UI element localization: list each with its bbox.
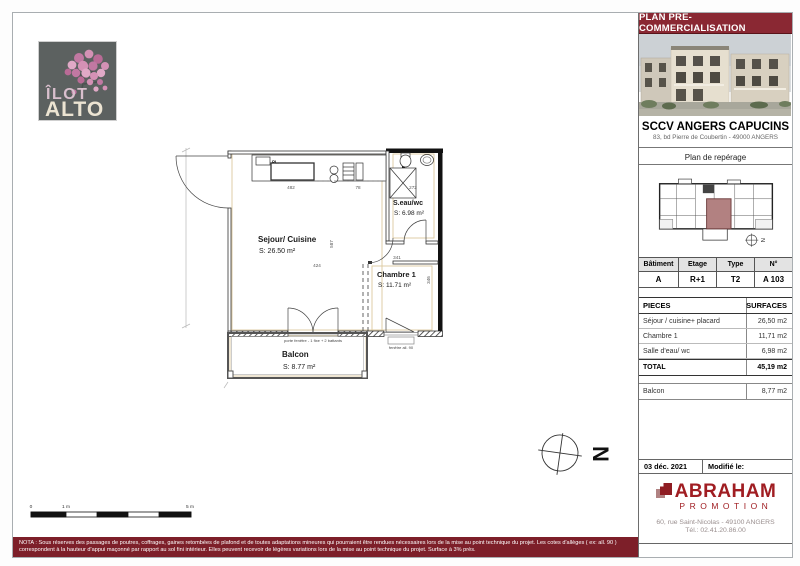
porte-fenetre-label: porte fenêtre - 1 fixe + 2 battants [284,338,342,343]
row-value: 6,98 m2 [746,344,792,358]
logo-text-bottom: ALTO [45,98,104,121]
col-pieces: PIECES [639,301,746,310]
dim-sejour-h: 587 [329,240,334,248]
floor-plan: Sejour/ Cuisine S: 26.50 m² S.eau/wc S: … [166,136,646,406]
reperage-title: Plan de repérage [639,150,792,165]
balcon-label: Balcon [282,350,309,359]
table-gap [639,376,792,383]
unit-header-type: Type [717,258,755,272]
balcon-value: 8,77 m2 [746,384,792,399]
balcon-row: Balcon 8,77 m2 [639,383,792,400]
table-row: Chambre 1 11,71 m2 [639,329,792,344]
unit-header-etage: Etage [679,258,717,272]
dim-kitchen: 482 [287,185,295,190]
dim-k2: 78 [355,185,361,190]
promoter-tagline: PROMOTION [655,501,773,511]
col-surfaces: SURFACES [746,298,792,313]
title-block-sidebar: PLAN PRE-COMMERCIALISATION [638,13,792,557]
modified-label: Modifié le: [703,462,744,471]
total-label: TOTAL [639,364,746,371]
building-right [731,54,789,104]
chambre-area: S: 11.71 m² [378,282,412,289]
table-row: Séjour / cuisine+ placard 26,50 m2 [639,314,792,329]
placard-label: PL. [272,160,279,165]
dim-sejour-w: 424 [313,263,321,268]
document-date: 03 déc. 2021 [639,460,703,473]
row-value: 26,50 m2 [746,314,792,328]
nota-line2: correspondent à la hauteur d'appui maçon… [19,547,640,554]
sdb-area: S: 6.98 m² [394,210,425,217]
scale-five: 5 m [186,504,194,510]
ilot-alto-logo: ÎLOT ALTO [38,41,117,121]
dimension-guides [182,148,228,388]
date-row: 03 déc. 2021 Modifié le: [639,459,792,474]
north-letter: N [588,446,613,462]
total-value: 45,19 m2 [746,360,792,375]
row-label: Chambre 1 [639,333,746,340]
dim-chambre-h: 346 [426,276,431,284]
building-render-image [639,34,791,116]
unit-value-etage: R+1 [679,272,717,287]
unit-value-type: T2 [717,272,755,287]
surfaces-header-row: PIECES SURFACES [639,297,792,314]
sejour-label: Sejour/ Cuisine [258,235,317,244]
scale-zero: 0 [30,504,33,510]
document-title-banner: PLAN PRE-COMMERCIALISATION [639,13,792,34]
nota-banner: NOTA : Sous réserves des passages de pou… [13,537,646,557]
unit-header-numero: N° [755,258,792,272]
bathroom-fixtures [390,153,434,198]
plan-sheet: ÎLOT ALTO [12,12,793,558]
promoter-block: ABRAHAM PROMOTION 60, rue Saint-Nicolas … [639,474,792,544]
chambre-label: Chambre 1 [377,270,416,279]
building-left [641,58,675,104]
location-plan: N [639,165,792,257]
nota-line1: NOTA : Sous réserves des passages de pou… [19,540,640,547]
row-label: Salle d'eau/ wc [639,348,746,355]
company-block: SCCV ANGERS CAPUCINS 83, bd Pierre de Co… [639,116,792,148]
highlighted-unit [706,199,730,229]
project-photo [639,34,792,116]
promoter-address: 60, rue Saint-Nicolas - 49100 ANGERS [639,519,792,526]
unit-info-table: Bâtiment Etage Type N° A R+1 T2 A 103 [639,257,792,288]
unit-header-batiment: Bâtiment [639,258,679,272]
sejour-area: S: 26.50 m² [259,248,296,255]
north-compass-icon: N [536,426,616,481]
row-value: 11,71 m2 [746,329,792,343]
company-address: 83, bd Pierre de Coubertin - 49000 ANGER… [639,134,792,141]
surfaces-table: PIECES SURFACES Séjour / cuisine+ placar… [639,297,792,400]
dim-bath: 272 [409,185,417,190]
balcon-area: S: 8.77 m² [283,364,316,371]
location-plan-drawing: N [654,169,778,253]
sdb-label: S.eau/wc [393,200,423,207]
mini-compass-icon [745,234,758,247]
company-name: SCCV ANGERS CAPUCINS [639,121,792,133]
stairwell [702,185,713,193]
promoter-name: ABRAHAM [675,483,777,500]
fenetre-label: fenêtre all. 90 [389,345,414,350]
scale-bar: 0 1 m 5 m [26,499,201,524]
row-label: Séjour / cuisine+ placard [639,318,746,325]
unit-value-numero: A 103 [755,272,792,287]
abraham-logo: ABRAHAM PROMOTION [655,482,777,511]
abraham-logo-icon [655,482,673,500]
dim-chambre-w: 341 [393,255,401,260]
mini-north-letter: N [759,238,765,242]
promoter-phone: Tél.: 02.41.20.86.00 [639,527,792,534]
scale-one: 1 m [62,504,70,510]
building-center [671,46,729,104]
table-row: Salle d'eau/ wc 6,98 m2 [639,344,792,359]
balcon-label: Balcon [639,388,746,395]
total-row: TOTAL 45,19 m2 [639,359,792,376]
unit-value-batiment: A [639,272,679,287]
